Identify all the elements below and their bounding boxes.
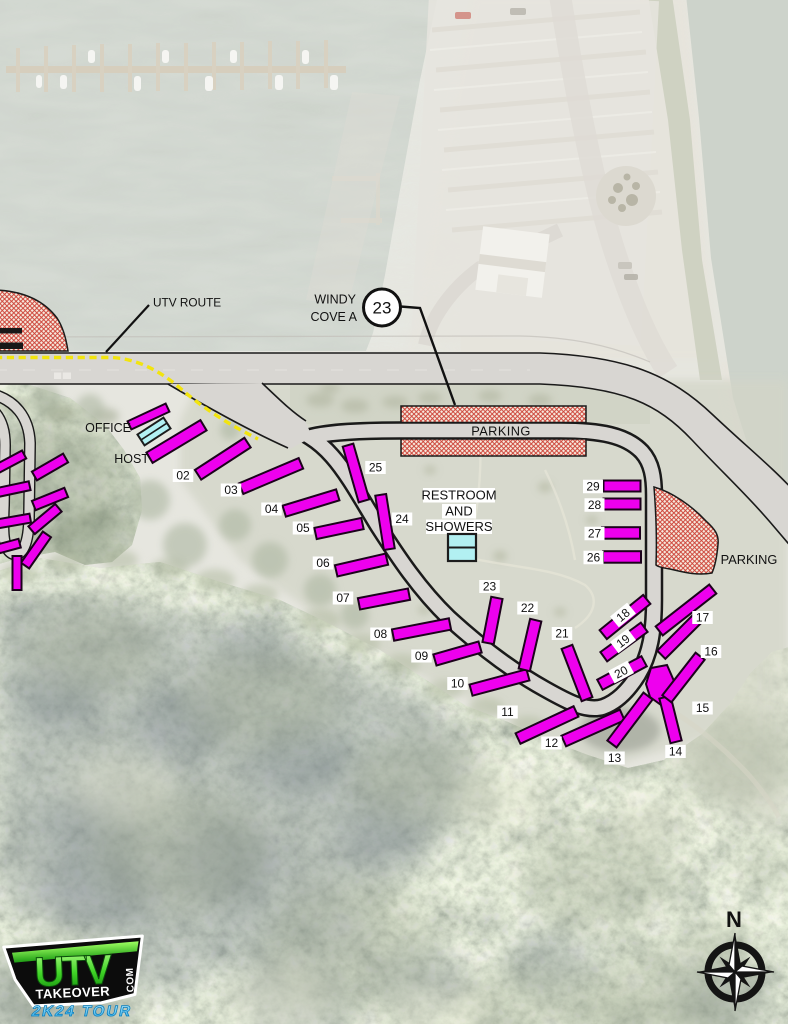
svg-text:COVE A: COVE A bbox=[310, 310, 357, 324]
svg-text:28: 28 bbox=[588, 498, 602, 512]
svg-text:N: N bbox=[726, 907, 742, 932]
svg-text:PARKING: PARKING bbox=[721, 552, 778, 567]
svg-text:27: 27 bbox=[588, 527, 602, 541]
svg-text:03: 03 bbox=[224, 483, 238, 497]
svg-text:07: 07 bbox=[336, 591, 350, 605]
svg-text:06: 06 bbox=[316, 556, 330, 570]
svg-text:23: 23 bbox=[373, 299, 392, 318]
svg-text:21: 21 bbox=[555, 627, 569, 641]
svg-text:25: 25 bbox=[369, 461, 383, 475]
svg-text:14: 14 bbox=[669, 745, 683, 759]
svg-text:10: 10 bbox=[451, 677, 465, 691]
svg-text:UTV ROUTE: UTV ROUTE bbox=[153, 296, 221, 310]
svg-text:24: 24 bbox=[395, 512, 409, 526]
svg-text:12: 12 bbox=[545, 736, 559, 750]
svg-text:15: 15 bbox=[696, 701, 710, 715]
svg-text:23: 23 bbox=[483, 580, 497, 594]
svg-text:09: 09 bbox=[415, 649, 429, 663]
svg-text:RESTROOM: RESTROOM bbox=[421, 488, 496, 503]
svg-text:17: 17 bbox=[696, 611, 710, 625]
svg-text:HOST: HOST bbox=[114, 452, 149, 466]
svg-text:22: 22 bbox=[521, 601, 535, 615]
svg-text:AND: AND bbox=[445, 504, 472, 519]
svg-text:PARKING: PARKING bbox=[471, 424, 530, 439]
svg-text:OFFICE: OFFICE bbox=[85, 421, 131, 435]
svg-text:.COM: .COM bbox=[125, 967, 137, 996]
svg-text:02: 02 bbox=[176, 469, 190, 483]
svg-text:04: 04 bbox=[265, 502, 279, 516]
svg-text:11: 11 bbox=[501, 705, 514, 719]
svg-text:13: 13 bbox=[608, 751, 622, 765]
svg-text:26: 26 bbox=[587, 551, 601, 565]
svg-text:2K24 TOUR: 2K24 TOUR bbox=[30, 1003, 134, 1020]
svg-text:05: 05 bbox=[296, 521, 310, 535]
svg-text:29: 29 bbox=[586, 480, 600, 494]
svg-text:08: 08 bbox=[374, 627, 388, 641]
svg-text:SHOWERS: SHOWERS bbox=[425, 519, 493, 534]
svg-text:WINDY: WINDY bbox=[314, 293, 356, 307]
svg-text:16: 16 bbox=[704, 645, 718, 659]
